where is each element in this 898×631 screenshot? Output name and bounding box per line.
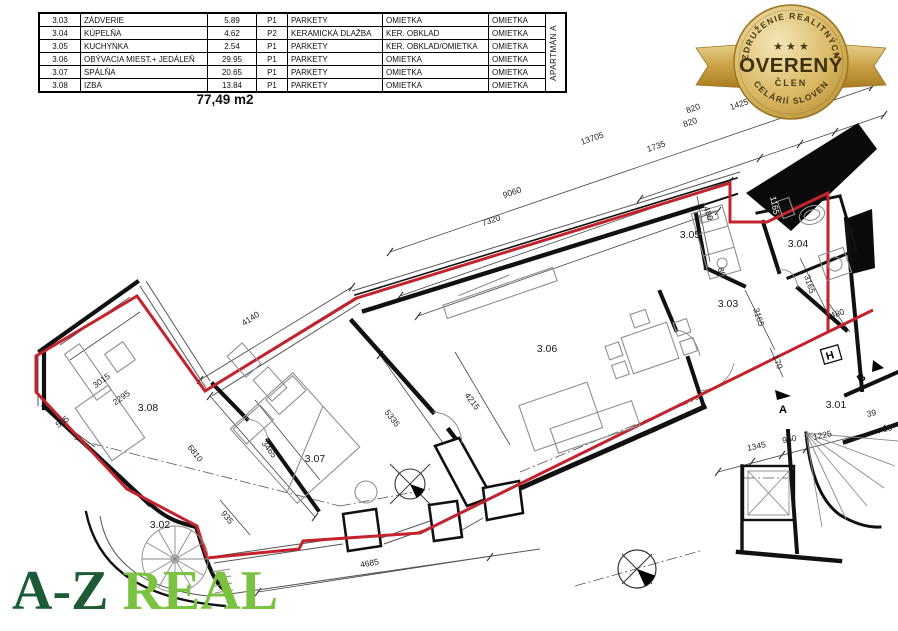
dim-label: 13705 (579, 130, 605, 147)
logo-part-light: REAL (108, 560, 278, 622)
room-label-3-04: 3.04 (788, 238, 809, 250)
room-label-3-06: 3.06 (537, 343, 558, 355)
cell-area: 5.89 (208, 13, 257, 27)
logo-part-dark: A-Z (12, 560, 108, 622)
badge-subtitle: ČLEN (775, 77, 808, 88)
azreal-logo: A-Z REAL (12, 563, 278, 619)
cell-ceiling: OMIETKA (489, 13, 546, 27)
cell-area: 2.54 (208, 40, 257, 53)
cell-layer: P2 (257, 27, 288, 40)
rooms-table: 3.03 ZÁDVERIE 5.89 P1 PARKETY OMIETKA OM… (38, 12, 567, 93)
dim-label: 9060 (501, 184, 522, 200)
dim-label: 935 (219, 508, 236, 526)
marker-h-label: H (825, 349, 836, 363)
cell-layer: P1 (257, 53, 288, 66)
elevator-shaft (743, 466, 794, 520)
cell-room-id: 3.07 (39, 66, 81, 79)
cell-layer: P1 (257, 66, 288, 79)
roof-fill-shape (746, 123, 877, 274)
table-row: 3.05 KUCHYNKA 2.54 P1 PARKETY KER. OBKLA… (39, 40, 566, 53)
cell-floor: PARKETY (288, 79, 383, 93)
apartment-column: APARTMÁN A (546, 13, 567, 92)
table-row: 3.03 ZÁDVERIE 5.89 P1 PARKETY OMIETKA OM… (39, 13, 566, 27)
verified-badge: ZDRUŽENIE REALITNÝCH ★ ★ ★ OVERENÝ ČLEN … (688, 0, 894, 132)
cell-floor: PARKETY (288, 53, 383, 66)
dim-label: 4685 (359, 556, 380, 569)
cell-layer: P1 (257, 40, 288, 53)
cell-walls: OMIETKA (383, 53, 489, 66)
cell-room-name: KÚPELŇA (81, 27, 208, 40)
dim-label: 6810 (186, 443, 206, 464)
cell-ceiling: OMIETKA (489, 79, 546, 93)
dim-label: 950 (781, 433, 797, 446)
apartment-label: APARTMÁN A (549, 25, 558, 81)
cell-room-id: 3.06 (39, 53, 81, 66)
room-label-3-01: 3.01 (826, 399, 847, 411)
dim-label: 39 (866, 407, 878, 419)
cell-walls: OMIETKA (383, 66, 489, 79)
cell-room-id: 3.04 (39, 27, 81, 40)
cell-floor: KERAMICKÁ DLAŽBA (288, 27, 383, 40)
dim-label: 170 (770, 353, 785, 370)
dim-label: 1480 (700, 201, 715, 222)
cell-layer: P1 (257, 13, 288, 27)
cell-area: 20.65 (208, 66, 257, 79)
table-row: 3.08 IZBA 13.84 P1 PARKETY OMIETKA OMIET… (39, 79, 566, 93)
cell-ceiling: OMIETKA (489, 66, 546, 79)
badge-stars: ★ ★ ★ (773, 41, 809, 53)
dim-label: 1225 (812, 428, 833, 442)
dim-label: 3165 (751, 307, 766, 328)
dim-label: 1735 (645, 138, 666, 154)
room-label-3-07: 3.07 (305, 453, 326, 465)
cell-area: 4.62 (208, 27, 257, 40)
cell-walls: KER. OBKLAD (383, 27, 489, 40)
cell-area: 13.84 (208, 79, 257, 93)
cell-walls: OMIETKA (383, 13, 489, 27)
cell-walls: KER. OBKLAD/OMIETKA (383, 40, 489, 53)
total-area-label: 77,49 m2 (150, 92, 300, 107)
cell-ceiling: OMIETKA (489, 53, 546, 66)
room-label-3-08: 3.08 (138, 402, 159, 414)
cell-room-name: IZBA (81, 79, 208, 93)
dim-label: 7320 (480, 212, 501, 228)
cell-layer: P1 (257, 79, 288, 93)
floorplan-page: 3.01 3.02 3.03 3.04 3.05 3.06 3.07 3.08 … (0, 0, 898, 631)
dim-label: 4140 (240, 309, 262, 328)
cell-floor: PARKETY (288, 66, 383, 79)
cell-room-name: OBÝVACIA MIEST.+ JEDÁLEŇ (81, 53, 208, 66)
survey-point-icon-small (390, 464, 430, 504)
room-label-3-02: 3.02 (150, 519, 171, 531)
curved-staircase (806, 433, 898, 527)
room-label-3-03: 3.03 (718, 298, 739, 310)
marker-a-label: A (779, 404, 787, 416)
cell-room-id: 3.08 (39, 79, 81, 93)
cell-room-id: 3.03 (39, 13, 81, 27)
cell-room-id: 3.05 (39, 40, 81, 53)
dim-label: 1345 (746, 439, 767, 453)
table-row: 3.06 OBÝVACIA MIEST.+ JEDÁLEŇ 29.95 P1 P… (39, 53, 566, 66)
window-lines (38, 172, 740, 596)
cell-room-name: SPÁLŇA (81, 66, 208, 79)
cell-area: 29.95 (208, 53, 257, 66)
cell-walls: OMIETKA (383, 79, 489, 93)
table-row: 3.07 SPÁLŇA 20.65 P1 PARKETY OMIETKA OMI… (39, 66, 566, 79)
badge-title: OVERENÝ (739, 53, 843, 77)
room-label-3-05: 3.05 (680, 229, 701, 241)
dim-label: 5335 (383, 408, 403, 429)
table-row: 3.04 KÚPELŇA 4.62 P2 KERAMICKÁ DLAŽBA KE… (39, 27, 566, 40)
cell-floor: PARKETY (288, 13, 383, 27)
survey-point-icon (618, 550, 656, 588)
cell-room-name: ZÁDVERIE (81, 13, 208, 27)
marker-b-label: B (855, 371, 868, 385)
cell-floor: PARKETY (288, 40, 383, 53)
cell-ceiling: OMIETKA (489, 27, 546, 40)
cell-room-name: KUCHYNKA (81, 40, 208, 53)
cell-ceiling: OMIETKA (489, 40, 546, 53)
